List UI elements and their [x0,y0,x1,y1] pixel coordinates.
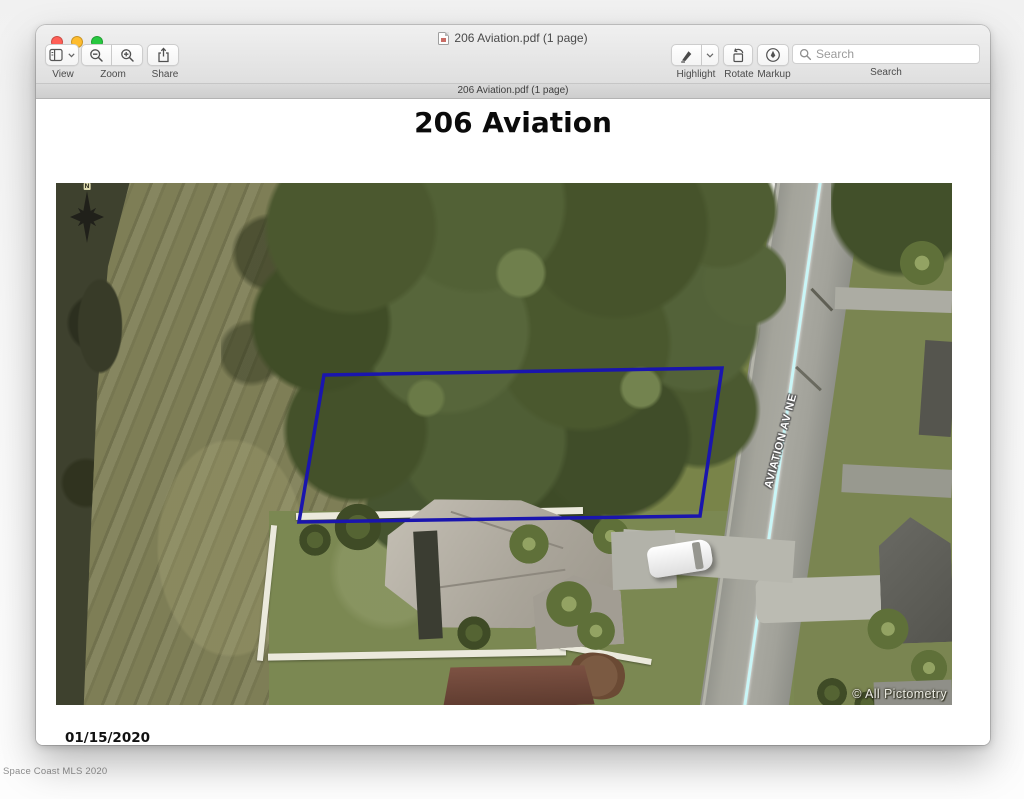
search-label: Search [792,67,980,78]
chevron-down-icon [68,53,75,58]
pdf-page: 206 Aviation [36,99,990,745]
view-button[interactable] [45,44,79,66]
markup-pen-icon [765,47,781,63]
window-toolbar: 206 Aviation.pdf (1 page) View [36,25,990,84]
window-title: 206 Aviation.pdf (1 page) [36,31,990,45]
search-input[interactable] [816,47,973,61]
share-tool-group: Share [147,44,183,80]
highlight-button[interactable] [671,44,702,66]
zoom-out-icon [89,48,104,63]
zoom-in-button[interactable] [112,44,143,66]
search-icon [799,48,812,61]
sidebar-icon [49,48,66,62]
lot-boundary-polygon [299,368,722,522]
page-date: 01/15/2020 [65,730,150,745]
zoom-in-icon [120,48,135,63]
markup-button[interactable] [757,44,789,66]
highlight-label: Highlight [671,69,721,80]
highlight-dropdown-button[interactable] [702,44,719,66]
rotate-left-icon [730,48,746,63]
zoom-label: Zoom [81,69,145,80]
rotate-label: Rotate [723,69,755,80]
view-label: View [45,69,81,80]
rotate-button[interactable] [723,44,753,66]
document-bar: 206 Aviation.pdf (1 page) [36,84,990,99]
highlight-tool-group: Highlight [671,44,721,80]
search-field[interactable] [792,44,980,64]
highlighter-pen-icon [679,48,694,63]
desktop-watermark: Space Coast MLS 2020 [3,766,107,777]
window-title-text: 206 Aviation.pdf (1 page) [454,31,587,45]
markup-tool-group: Markup [757,44,791,80]
zoom-tool-group: Zoom [81,44,145,80]
page-title: 206 Aviation [36,106,990,139]
search-tool-group: Search [792,44,980,78]
chevron-down-icon [706,53,714,58]
share-button[interactable] [147,44,179,66]
zoom-out-button[interactable] [81,44,112,66]
pdf-file-icon [438,32,449,45]
rotate-tool-group: Rotate [723,44,755,80]
view-tool-group: View [45,44,81,80]
preview-window: 206 Aviation.pdf (1 page) View [36,25,990,745]
aerial-photo: N AVIATION AV NE © All Pictometry [56,183,952,705]
markup-label: Markup [757,69,791,80]
lot-boundary-overlay [56,183,952,705]
share-icon [157,47,170,63]
share-label: Share [147,69,183,80]
